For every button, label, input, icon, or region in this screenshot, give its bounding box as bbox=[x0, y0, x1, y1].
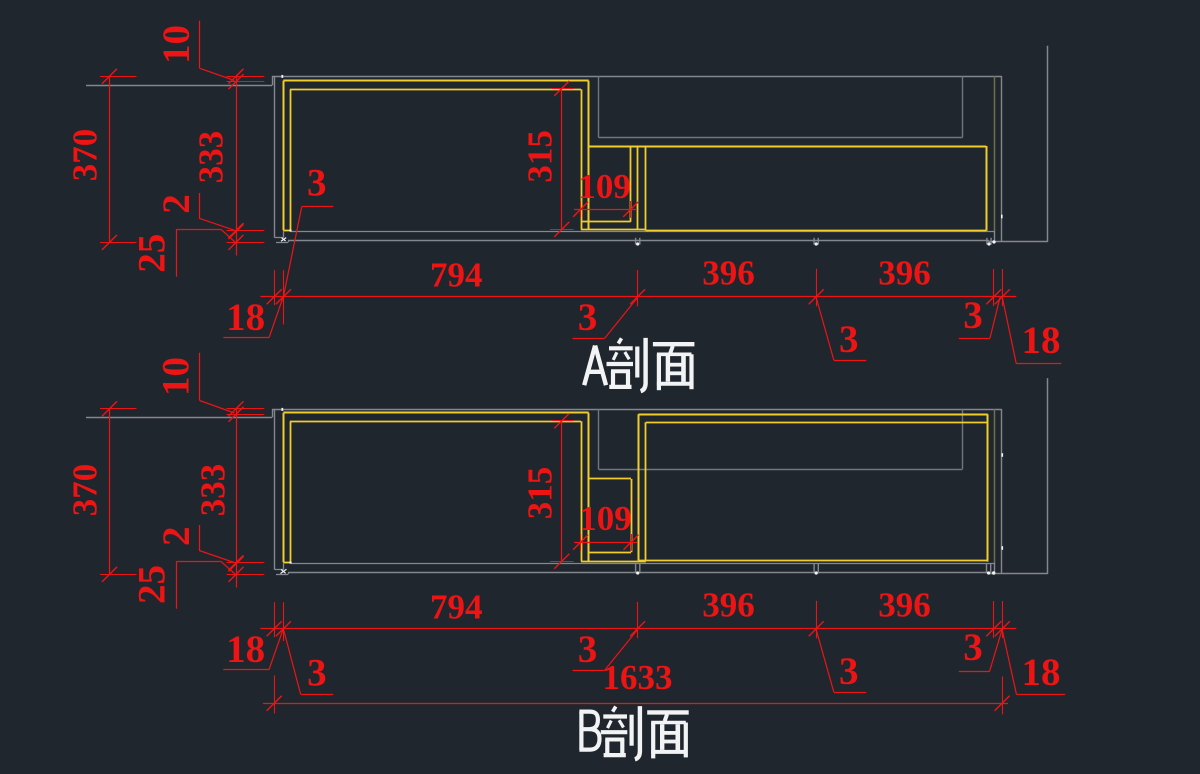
svg-text:18: 18 bbox=[226, 628, 265, 671]
svg-text:3: 3 bbox=[578, 628, 598, 671]
svg-text:25: 25 bbox=[131, 565, 174, 604]
svg-text:18: 18 bbox=[1022, 651, 1061, 694]
svg-text:109: 109 bbox=[578, 167, 631, 206]
svg-text:3: 3 bbox=[307, 161, 327, 204]
svg-text:3: 3 bbox=[839, 650, 859, 693]
svg-text:1633: 1633 bbox=[603, 658, 673, 697]
svg-text:3: 3 bbox=[839, 318, 859, 361]
svg-text:25: 25 bbox=[131, 234, 174, 273]
svg-text:2: 2 bbox=[155, 526, 198, 546]
svg-text:333: 333 bbox=[192, 131, 231, 184]
svg-text:396: 396 bbox=[878, 254, 931, 293]
svg-text:370: 370 bbox=[66, 129, 105, 182]
svg-text:396: 396 bbox=[702, 254, 755, 293]
svg-text:18: 18 bbox=[1022, 319, 1061, 362]
svg-text:2: 2 bbox=[155, 194, 198, 214]
svg-text:3: 3 bbox=[307, 651, 327, 694]
svg-text:396: 396 bbox=[702, 586, 755, 625]
svg-text:315: 315 bbox=[521, 467, 560, 520]
svg-text:10: 10 bbox=[155, 25, 198, 64]
svg-text:794: 794 bbox=[430, 588, 483, 627]
svg-text:315: 315 bbox=[521, 130, 560, 183]
svg-text:3: 3 bbox=[963, 294, 983, 337]
svg-text:396: 396 bbox=[878, 586, 931, 625]
svg-text:3: 3 bbox=[963, 626, 983, 669]
svg-text:18: 18 bbox=[226, 296, 265, 339]
svg-text:109: 109 bbox=[579, 499, 632, 538]
svg-text:794: 794 bbox=[430, 256, 483, 295]
svg-text:370: 370 bbox=[66, 464, 105, 517]
svg-text:3: 3 bbox=[578, 296, 598, 339]
svg-text:333: 333 bbox=[194, 464, 233, 517]
svg-text:10: 10 bbox=[155, 357, 198, 396]
